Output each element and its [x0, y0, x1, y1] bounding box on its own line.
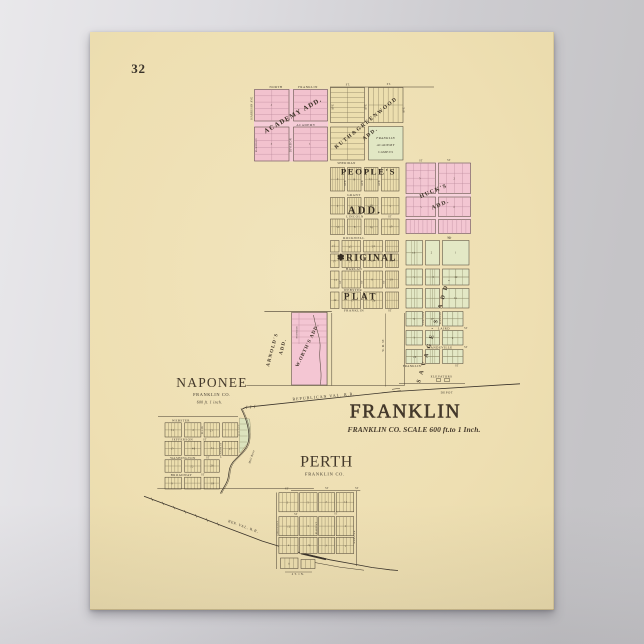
svg-text:AVE: AVE — [403, 107, 406, 113]
svg-text:NAPONEE: NAPONEE — [176, 375, 247, 390]
svg-text:FRANKLIN: FRANKLIN — [403, 364, 422, 368]
svg-text:REP. VAL. R.R.: REP. VAL. R.R. — [228, 519, 260, 534]
svg-text:DIVISION: DIVISION — [290, 138, 293, 152]
svg-text:Mill Race: Mill Race — [247, 449, 256, 465]
svg-text:12: 12 — [333, 299, 337, 302]
svg-text:LINCOLN: LINCOLN — [346, 215, 364, 219]
svg-text:DEPOT: DEPOT — [441, 391, 454, 395]
svg-text:AVE: AVE — [361, 180, 364, 186]
svg-text:WEBSTER: WEBSTER — [172, 418, 190, 422]
svg-text:WEBSTER: WEBSTER — [353, 530, 356, 543]
svg-text:FRANKLIN: FRANKLIN — [344, 309, 364, 313]
svg-text:AVE: AVE — [365, 104, 368, 110]
svg-text:MAIN ST: MAIN ST — [315, 522, 318, 534]
svg-text:LINCOLN: LINCOLN — [422, 311, 425, 324]
svg-text:JEFFERSON: JEFFERSON — [172, 438, 193, 442]
svg-text:AVE: AVE — [344, 180, 347, 186]
svg-text:PEOPLE'S: PEOPLE'S — [341, 167, 396, 177]
svg-text:CAMPUS: CAMPUS — [378, 150, 393, 154]
svg-text:ST: ST — [294, 513, 298, 516]
svg-text:FRANKLIN CO. SCALE 600 ft.to: FRANKLIN CO. SCALE 600 ft.to 1 Inch. — [347, 425, 480, 434]
svg-text:W. M. ST.: W. M. ST. — [382, 338, 385, 351]
svg-text:ST: ST — [383, 280, 386, 284]
svg-text:FRANKLIN CO.: FRANKLIN CO. — [305, 471, 345, 476]
svg-text:ST.: ST. — [346, 84, 350, 87]
svg-text:✽RIGINAL: ✽RIGINAL — [337, 252, 397, 262]
svg-text:ST: ST — [203, 438, 207, 441]
svg-text:FRANKLIN: FRANKLIN — [298, 85, 318, 89]
svg-text:PENNIMAN: PENNIMAN — [219, 442, 222, 457]
svg-text:ST: ST — [455, 365, 459, 368]
svg-text:CHESTNUT: CHESTNUT — [276, 520, 279, 535]
svg-text:ACADEMY: ACADEMY — [376, 143, 396, 147]
svg-text:FRANKLIN: FRANKLIN — [375, 136, 395, 140]
svg-text:40: 40 — [192, 448, 196, 451]
svg-text:LAIRD: LAIRD — [438, 327, 450, 331]
svg-text:ACADEMY: ACADEMY — [296, 123, 315, 127]
svg-text:ST: ST — [325, 487, 329, 490]
svg-text:ST.: ST. — [387, 83, 391, 86]
svg-text:26: 26 — [211, 465, 215, 468]
svg-text:4 T. 1 N.: 4 T. 1 N. — [292, 573, 304, 576]
svg-text:NORTH: NORTH — [270, 85, 283, 89]
svg-text:ST: ST — [464, 327, 468, 330]
svg-text:MONROE: MONROE — [296, 326, 299, 339]
svg-text:PERTH: PERTH — [300, 454, 353, 471]
svg-text:ST: ST — [464, 346, 468, 349]
svg-text:ST: ST — [388, 215, 392, 218]
svg-text:ST: ST — [355, 487, 359, 490]
svg-text:ST: ST — [285, 488, 289, 491]
svg-text:ST: ST — [206, 457, 210, 460]
svg-text:600 ft. 1 inch.: 600 ft. 1 inch. — [197, 400, 223, 404]
svg-text:FRANKLIN: FRANKLIN — [350, 401, 461, 422]
svg-text:ST: ST — [201, 474, 205, 477]
svg-text:WASHINGTON: WASHINGTON — [170, 456, 196, 460]
svg-text:AVE: AVE — [378, 180, 381, 186]
svg-text:20: 20 — [413, 356, 417, 359]
svg-text:19: 19 — [390, 278, 394, 281]
svg-text:ST: ST — [448, 237, 452, 240]
svg-text:SHERIDAN: SHERIDAN — [337, 161, 356, 165]
svg-text:ST: ST — [419, 159, 423, 162]
svg-text:HARLAN: HARLAN — [346, 267, 362, 271]
svg-text:HARRISON AVE: HARRISON AVE — [251, 96, 254, 119]
svg-text:ROCKWELL: ROCKWELL — [343, 236, 365, 240]
svg-text:ST: ST — [360, 280, 363, 284]
svg-text:BROADWAY: BROADWAY — [171, 473, 193, 477]
svg-text:ST: ST — [447, 159, 451, 162]
svg-text:AVE: AVE — [331, 104, 334, 110]
svg-text:32: 32 — [131, 61, 146, 76]
svg-text:GRANT: GRANT — [347, 193, 360, 197]
svg-text:PLAT: PLAT — [344, 291, 378, 301]
svg-text:ADD.: ADD. — [279, 338, 288, 355]
svg-text:ELEVATORS: ELEVATORS — [431, 374, 453, 378]
svg-text:McKINLEY: McKINLEY — [255, 138, 258, 152]
svg-text:REPUBLICAN VAL. R.R.: REPUBLICAN VAL. R.R. — [292, 391, 355, 401]
svg-text:ARNOLD'S: ARNOLD'S — [266, 332, 280, 367]
svg-text:ST: ST — [334, 513, 338, 516]
svg-text:ST: ST — [339, 280, 342, 284]
svg-text:12: 12 — [454, 276, 458, 279]
svg-text:FRANKLIN CO.: FRANKLIN CO. — [193, 392, 231, 397]
svg-text:MAIN: MAIN — [201, 426, 204, 434]
svg-text:ST: ST — [388, 309, 392, 312]
